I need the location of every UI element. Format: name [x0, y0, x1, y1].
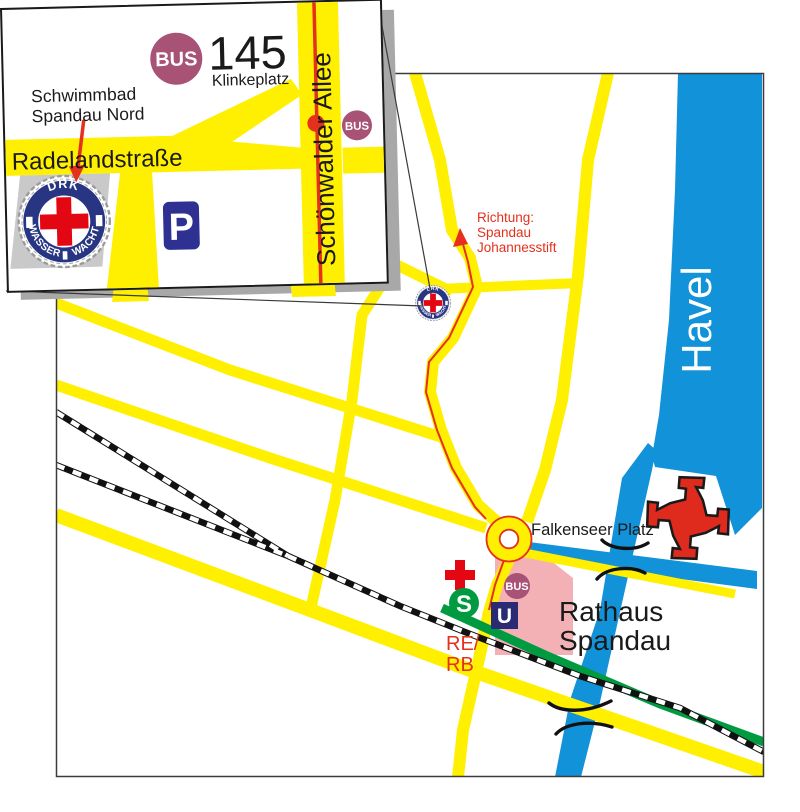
- roundabout-falkenseer-platz: [487, 517, 532, 562]
- bus-badge-label: BUS: [505, 581, 528, 593]
- street-label-radelandstrasse: Radelandstraße: [11, 145, 182, 176]
- street-label-schoenwalder-allee: Schönwalder Allee: [306, 52, 341, 267]
- bus-line-badge: BUS: [150, 32, 203, 85]
- regional-line: RB: [446, 654, 474, 676]
- regional-line: RE/: [446, 633, 480, 655]
- pool-label: Schwimmbad Spandau Nord: [31, 84, 145, 127]
- river-label: Havel: [673, 266, 720, 373]
- parking-icon: P: [163, 201, 200, 250]
- townhall-line: Spandau: [559, 625, 671, 656]
- direction-line: Johannesstift: [477, 240, 557, 255]
- townhall-label: Rathaus Spandau: [559, 596, 671, 656]
- map-canvas: DRK WASSER WACHT: [0, 0, 800, 812]
- drk-logo-marker: [415, 285, 450, 320]
- bus-badge-label: BUS: [345, 121, 370, 134]
- direction-line: Richtung:: [477, 210, 534, 225]
- bus-stop-badge: BUS: [342, 110, 373, 141]
- bus-badge: BUS: [504, 573, 530, 599]
- ubahn-label: U: [497, 605, 512, 628]
- pool-label-line: Spandau Nord: [31, 104, 144, 127]
- road-south: [104, 172, 159, 288]
- sbahn-label: S: [456, 591, 472, 618]
- townhall-line: Rathaus: [559, 596, 663, 627]
- inset-map: P BUS BUS 145 Klinkeplatz Schwimmbad Spa…: [0, 0, 389, 293]
- inset-graphics: P BUS BUS 145 Klinkeplatz Schwimmbad Spa…: [2, 1, 387, 291]
- road-east-west-link: [438, 283, 580, 289]
- direction-line: Spandau: [477, 225, 531, 240]
- road-east: [343, 147, 385, 174]
- sbahn-icon: S: [449, 588, 479, 618]
- pool-label-line: Schwimmbad: [31, 84, 137, 107]
- square-label: Falkenseer Platz: [531, 521, 654, 539]
- bus-circle-label: BUS: [155, 48, 198, 71]
- bus-stop-name: Klinkeplatz: [212, 71, 290, 90]
- ubahn-icon: U: [491, 602, 518, 629]
- parking-label: P: [168, 206, 194, 249]
